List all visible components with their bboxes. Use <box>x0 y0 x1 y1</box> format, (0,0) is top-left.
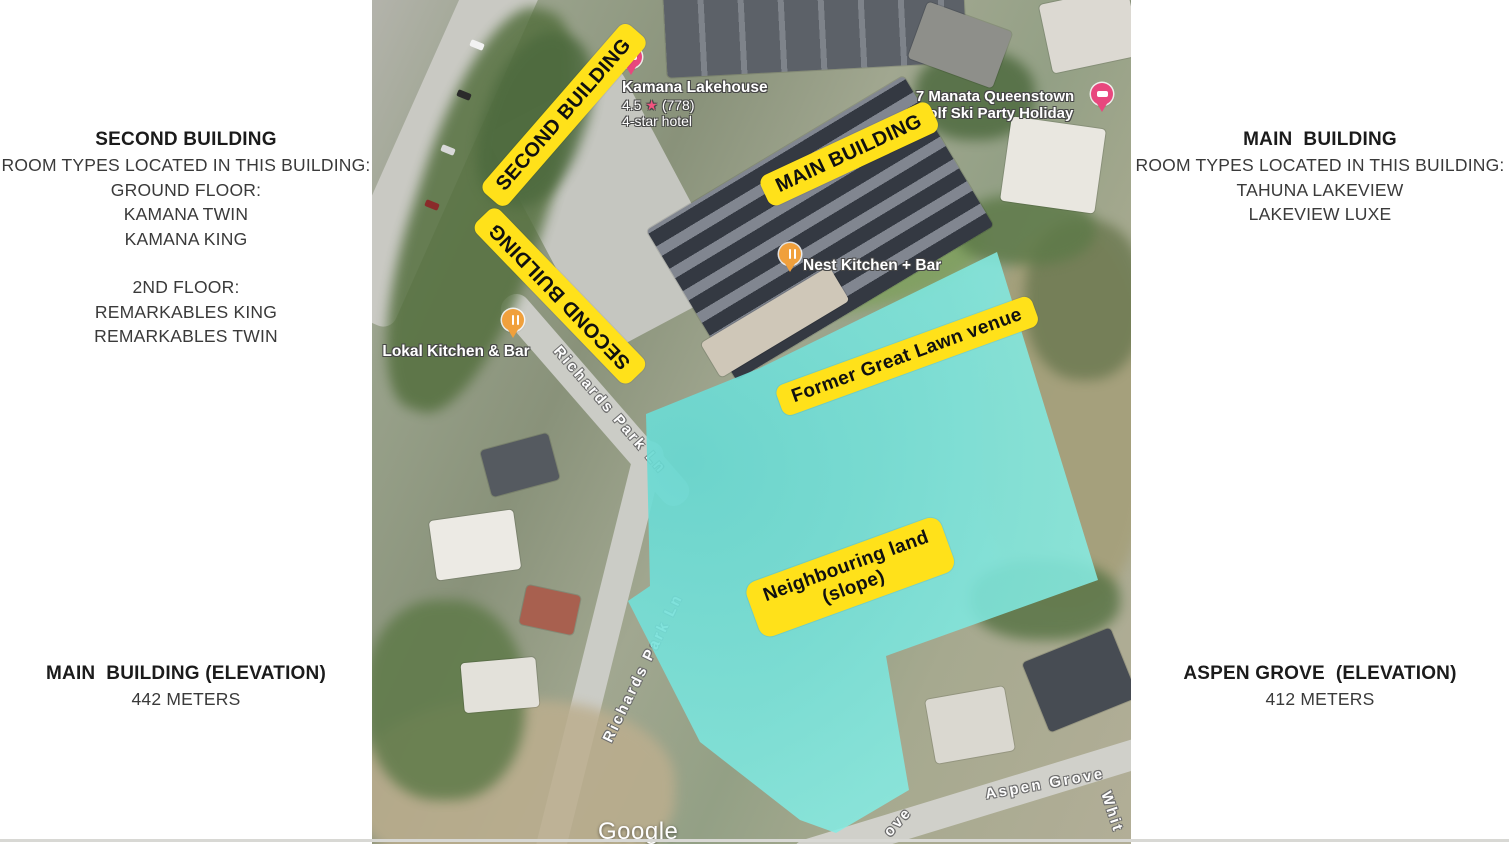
room-type-remarkables-twin: REMARKABLES TWIN <box>0 324 372 349</box>
house-shape <box>1000 116 1106 213</box>
main-building-elevation-block: MAIN BUILDING (ELEVATION) 442 METERS <box>0 660 372 712</box>
bottom-divider <box>0 839 1509 842</box>
star-icon: ★ <box>645 97 658 113</box>
poi-lokal-kitchen-bar[interactable]: Lokal Kitchen & Bar <box>382 343 529 361</box>
room-types-heading: ROOM TYPES LOCATED IN THIS BUILDING: <box>1131 153 1509 178</box>
second-building-info: SECOND BUILDING ROOM TYPES LOCATED IN TH… <box>0 126 372 349</box>
pin-tail <box>784 262 796 272</box>
house-shape <box>1022 627 1131 732</box>
poi-name[interactable]: Kamana Lakehouse <box>622 79 768 97</box>
house-shape <box>925 686 1015 764</box>
room-type-kamana-king: KAMANA KING <box>0 227 372 252</box>
house-shape <box>480 433 560 497</box>
ground-floor-heading: GROUND FLOOR: <box>0 178 372 203</box>
aspen-grove-elevation-title: ASPEN GROVE (ELEVATION) <box>1131 660 1509 687</box>
fork-knife-icon <box>512 315 514 325</box>
right-annotation-panel: MAIN BUILDING ROOM TYPES LOCATED IN THIS… <box>1131 0 1509 844</box>
room-types-heading: ROOM TYPES LOCATED IN THIS BUILDING: <box>0 153 372 178</box>
left-annotation-panel: SECOND BUILDING ROOM TYPES LOCATED IN TH… <box>0 0 372 844</box>
main-building-elevation-value: 442 METERS <box>0 687 372 712</box>
main-building-info: MAIN BUILDING ROOM TYPES LOCATED IN THIS… <box>1131 126 1509 227</box>
house-shape <box>1039 0 1131 74</box>
fork-knife-icon <box>789 249 791 259</box>
pin-tail <box>1096 102 1108 112</box>
hotel-pin-icon[interactable] <box>1091 83 1113 112</box>
aspen-grove-elevation-value: 412 METERS <box>1131 687 1509 712</box>
poi-rating-line: 4.5 ★ (778) <box>622 97 768 113</box>
restaurant-pin-icon[interactable] <box>779 243 801 272</box>
poi-kamana-lakehouse: Kamana Lakehouse 4.5 ★ (778) 4-star hote… <box>622 79 768 129</box>
main-building-title: MAIN BUILDING <box>1131 126 1509 153</box>
pin-tail <box>507 328 519 338</box>
poi-category: 4-star hotel <box>622 113 768 129</box>
room-type-lakeview-luxe: LAKEVIEW LUXE <box>1131 202 1509 227</box>
bed-icon <box>1097 91 1108 97</box>
rating-value: 4.5 <box>622 97 641 113</box>
room-type-kamana-twin: KAMANA TWIN <box>0 202 372 227</box>
room-type-tahuna-lakeview: TAHUNA LAKEVIEW <box>1131 178 1509 203</box>
second-floor-heading: 2ND FLOOR: <box>0 275 372 300</box>
satellite-map[interactable]: Richards Park Ln Richards Park Ln Aspen … <box>372 0 1131 844</box>
room-type-remarkables-king: REMARKABLES KING <box>0 300 372 325</box>
main-building-elevation-title: MAIN BUILDING (ELEVATION) <box>0 660 372 687</box>
poi-nest-kitchen-bar[interactable]: Nest Kitchen + Bar <box>803 257 941 275</box>
house-shape <box>429 509 522 580</box>
review-count: (778) <box>662 97 695 113</box>
house-shape <box>460 657 539 713</box>
second-building-title: SECOND BUILDING <box>0 126 372 153</box>
poi-manata: 7 Manata Queenstown Golf Ski Party Holid… <box>916 88 1074 122</box>
spacer <box>0 251 372 275</box>
house-shape <box>519 585 581 636</box>
poi-name[interactable]: Golf Ski Party Holiday <box>916 105 1074 122</box>
poi-name[interactable]: 7 Manata Queenstown <box>916 88 1074 105</box>
aspen-grove-elevation-block: ASPEN GROVE (ELEVATION) 412 METERS <box>1131 660 1509 712</box>
street-label-whit-partial: Whit <box>1097 789 1126 835</box>
restaurant-pin-icon[interactable] <box>502 309 524 338</box>
